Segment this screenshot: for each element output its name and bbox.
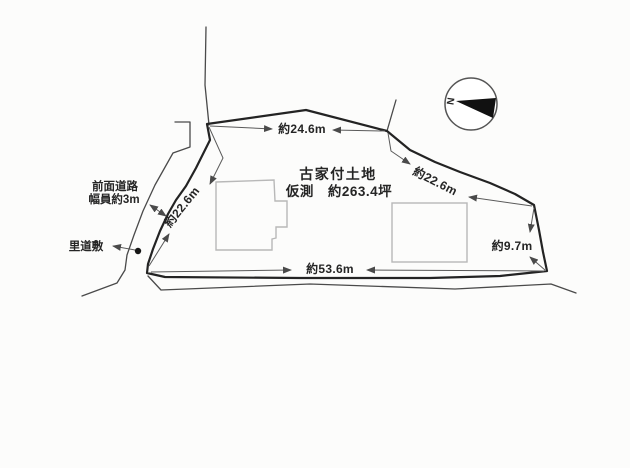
rido-point-dot — [135, 248, 141, 254]
dim-short-lower-arrow — [530, 257, 545, 270]
front-road-label-line1: 前面道路 — [92, 179, 138, 193]
dim-bottom-label: 約53.6m — [306, 261, 354, 276]
parcel-area-label: 仮測 約263.4坪 — [285, 183, 392, 199]
dim-left-label: 約22.6m — [161, 183, 203, 230]
building-right — [392, 203, 467, 262]
dim-top-label: 約24.6m — [278, 121, 326, 136]
land-plot-diagram: N 約24.6m 約22.6m 約22.6m 約9.7m 約53.6m 古家付土… — [0, 0, 630, 468]
dim-right-short-label: 約9.7m — [492, 238, 533, 253]
front-road-label-line2: 幅員約3m — [88, 192, 139, 206]
plot-survey-svg: N 約24.6m 約22.6m 約22.6m 約9.7m 約53.6m 古家付土… — [0, 0, 630, 468]
road-lines — [82, 27, 576, 296]
rido-pointer-arrow — [113, 246, 135, 250]
dim-top-left-arrow — [210, 126, 272, 129]
dim-bottom-right-arrow — [367, 270, 544, 271]
northeast-boundary-tick — [387, 100, 396, 131]
compass: N — [445, 78, 497, 130]
dim-bottom-left-arrow — [151, 270, 291, 272]
rido-label: 里道敷 — [69, 239, 104, 253]
dim-left-upper-arrow — [209, 127, 223, 184]
dim-short-upper-arrow — [530, 208, 534, 232]
road-width-arrow — [150, 205, 166, 216]
building-left — [216, 180, 287, 250]
dim-top-right-arrow — [333, 130, 385, 131]
north-boundary-line — [205, 27, 209, 125]
parcel-title-label: 古家付土地 — [299, 166, 377, 182]
